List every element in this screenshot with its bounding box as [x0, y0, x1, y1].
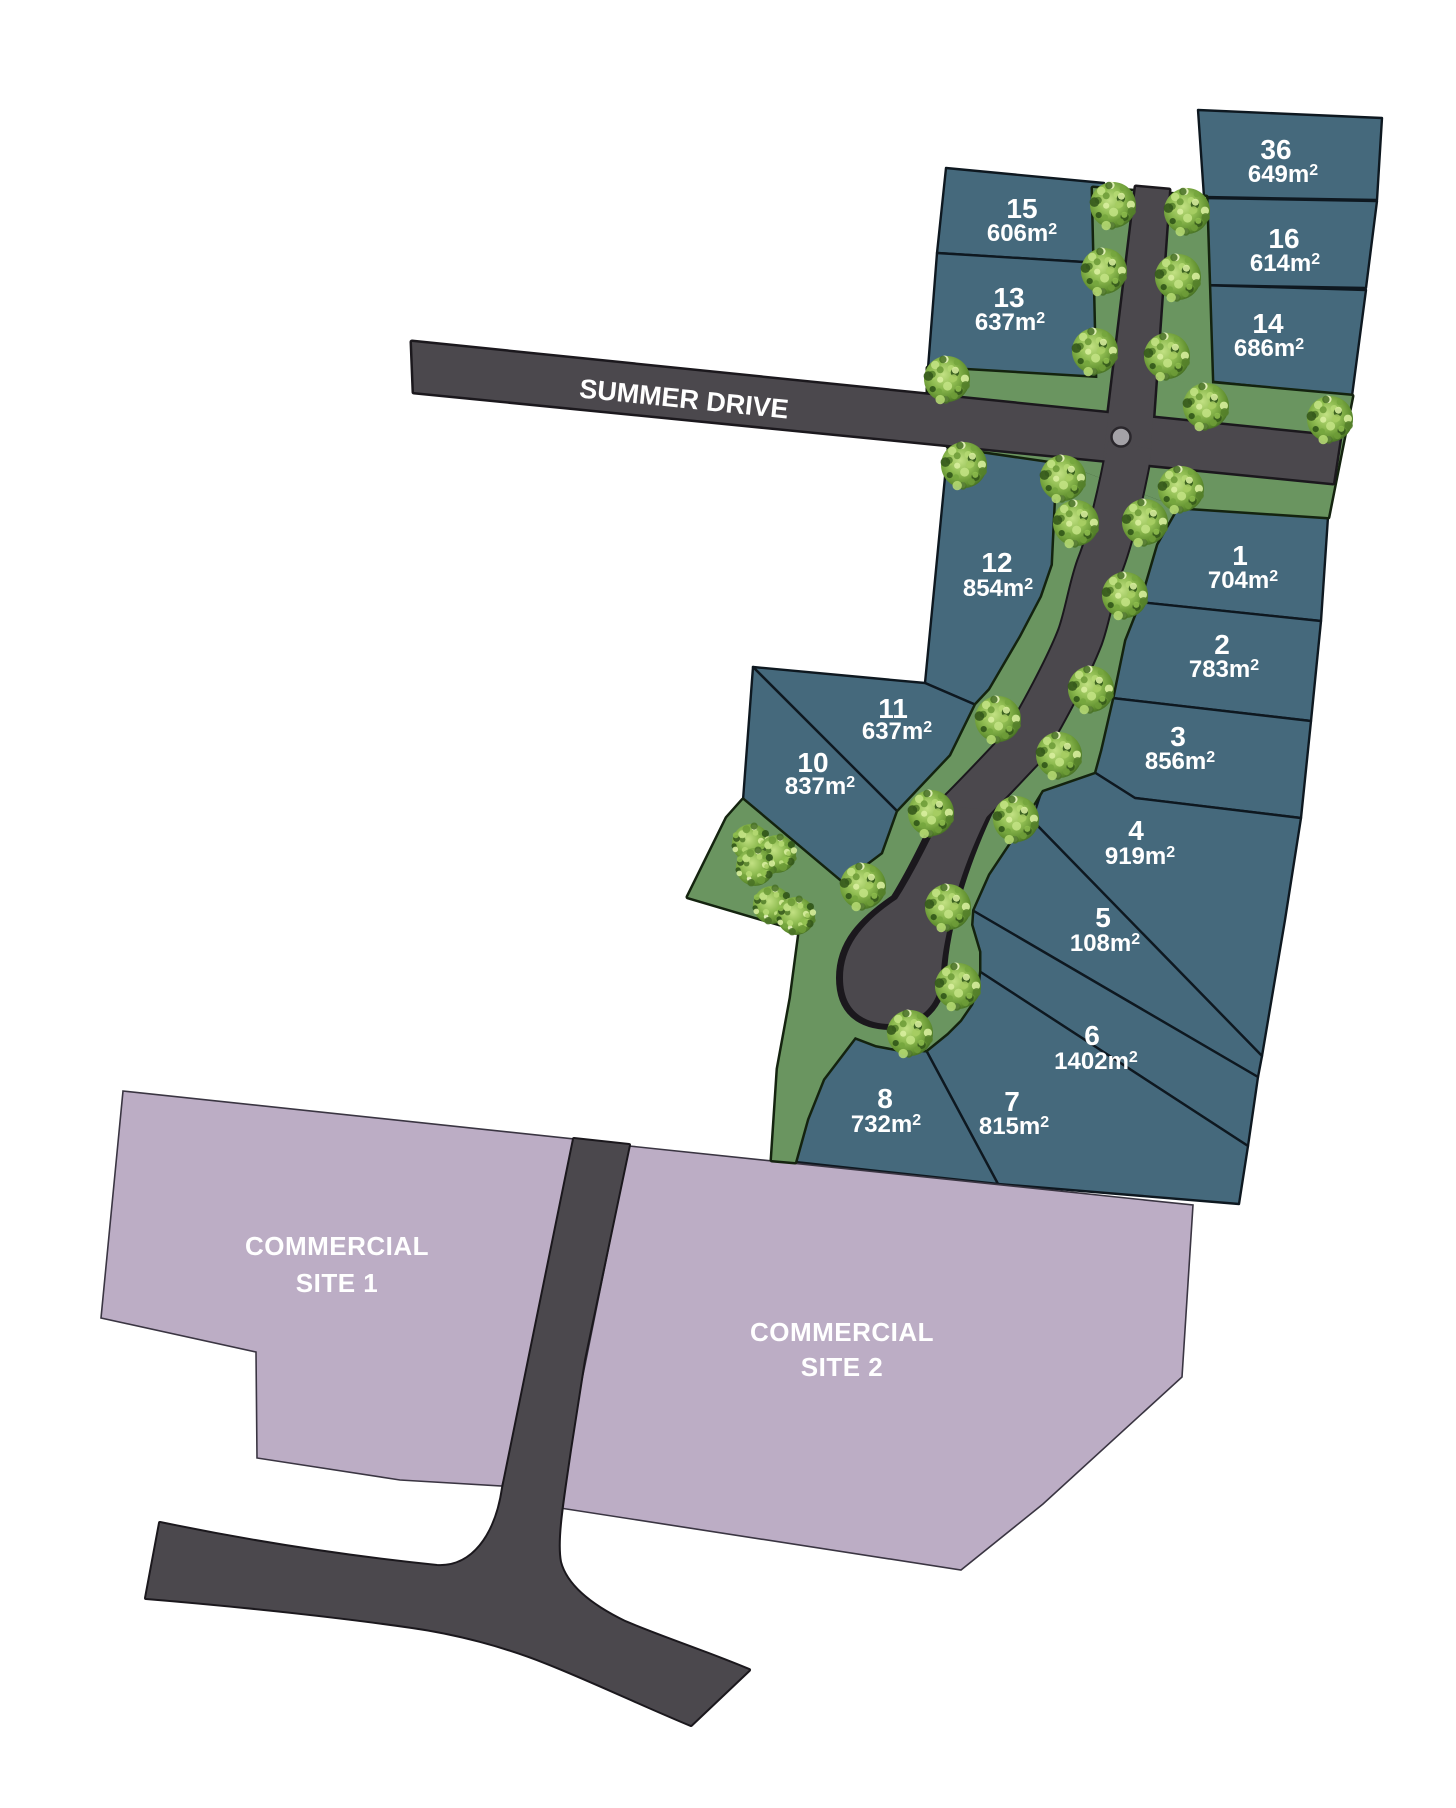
- svg-text:12: 12: [981, 547, 1012, 578]
- svg-text:704m2: 704m2: [1208, 567, 1278, 594]
- svg-text:4: 4: [1128, 815, 1144, 846]
- svg-text:614m2: 614m2: [1250, 250, 1320, 277]
- svg-text:COMMERCIAL: COMMERCIAL: [750, 1317, 934, 1347]
- svg-text:783m2: 783m2: [1189, 656, 1259, 683]
- svg-text:SITE 1: SITE 1: [296, 1268, 378, 1298]
- svg-text:637m2: 637m2: [975, 309, 1045, 336]
- svg-text:854m2: 854m2: [963, 575, 1033, 602]
- svg-text:6: 6: [1084, 1020, 1100, 1051]
- svg-text:856m2: 856m2: [1145, 748, 1215, 775]
- svg-text:637m2: 637m2: [862, 718, 932, 745]
- svg-text:1402m2: 1402m2: [1054, 1048, 1138, 1075]
- svg-text:649m2: 649m2: [1248, 161, 1318, 188]
- svg-text:919m2: 919m2: [1105, 843, 1175, 870]
- svg-text:606m2: 606m2: [987, 220, 1057, 247]
- svg-text:5: 5: [1095, 902, 1111, 933]
- svg-text:8: 8: [877, 1083, 893, 1114]
- svg-text:837m2: 837m2: [785, 773, 855, 800]
- svg-text:COMMERCIAL: COMMERCIAL: [245, 1231, 429, 1261]
- svg-text:686m2: 686m2: [1234, 335, 1304, 362]
- svg-text:108m2: 108m2: [1070, 930, 1140, 957]
- svg-text:732m2: 732m2: [851, 1111, 921, 1138]
- svg-text:SITE 2: SITE 2: [801, 1352, 883, 1382]
- svg-text:815m2: 815m2: [979, 1113, 1049, 1140]
